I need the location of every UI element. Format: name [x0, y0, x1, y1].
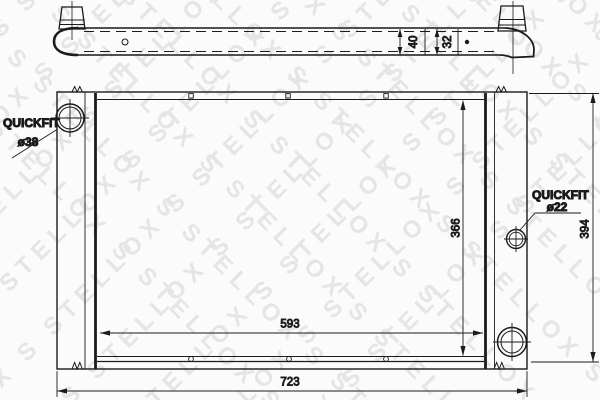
quickfit-22-port [504, 226, 528, 252]
bottom-mount-holes [189, 357, 389, 362]
top-right-pin [496, 87, 506, 93]
core-width-value: 593 [280, 319, 299, 331]
front-view: 366 394 593 [3, 87, 599, 398]
overall-width-value: 723 [280, 377, 299, 389]
right-elbow [500, 28, 534, 58]
core-height-value: 366 [451, 218, 463, 237]
quickfit-22-leader [520, 213, 581, 230]
bottom-right-pin [494, 363, 504, 370]
top-view: 40 32 [54, 1, 534, 74]
bottom-left-pin [72, 363, 82, 370]
drawing-svg: 40 32 [0, 0, 600, 400]
radiator-technical-drawing: S STELLOX S STELLOX S STELLOX S STELLOX … [0, 0, 600, 400]
top-mount-holes [189, 94, 388, 99]
depth-40-value: 40 [408, 36, 420, 49]
bottom-right-port [493, 323, 531, 361]
quickfit-22-diameter: ø22 [547, 200, 568, 214]
depth-32-value: 32 [442, 36, 454, 49]
body-hole [122, 39, 128, 45]
quickfit-38-text: QUICKFIT [3, 116, 60, 130]
top-left-pin [72, 87, 82, 93]
body-left-bend [54, 28, 78, 55]
overall-height-value: 394 [580, 219, 592, 239]
reference-dot [465, 40, 469, 44]
quickfit-38-diameter: ø38 [18, 135, 39, 149]
quickfit-38-label: QUICKFIT ø38 [3, 116, 60, 158]
dimension-core-width [100, 330, 483, 335]
